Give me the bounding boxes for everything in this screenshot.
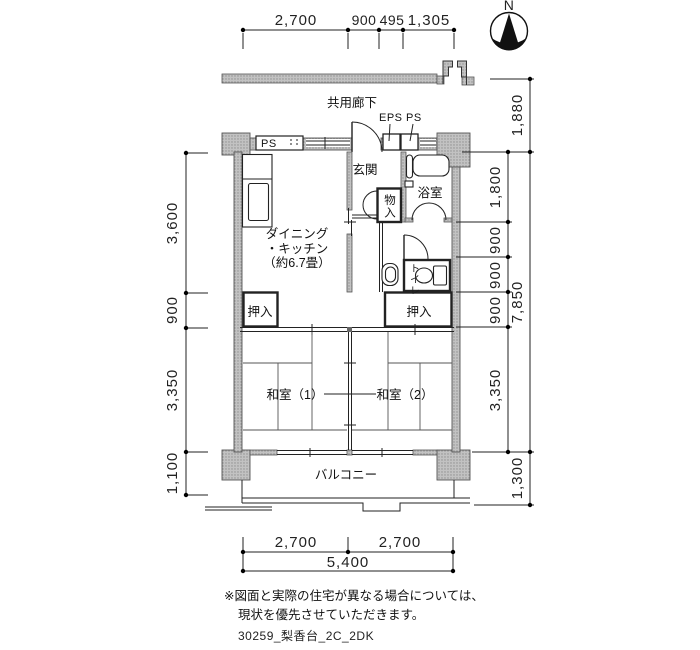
bath-door-swing2 bbox=[429, 203, 446, 220]
dim-right-inner-2: 900 bbox=[487, 226, 504, 254]
corridor-label: 共用廊下 bbox=[327, 95, 377, 110]
dim-left-4: 1,100 bbox=[164, 452, 181, 495]
north-compass: N bbox=[491, 0, 528, 50]
room-label-storage: 物入 bbox=[383, 193, 396, 219]
dim-top-4: 1,305 bbox=[408, 12, 451, 29]
bath-door-swing bbox=[412, 203, 429, 220]
dimension-bottom: 2,700 2,700 5,400 bbox=[241, 534, 455, 573]
dim-bottom-total: 5,400 bbox=[327, 554, 370, 571]
dim-bottom-1: 2,700 bbox=[275, 534, 318, 551]
storage-closet bbox=[363, 189, 401, 223]
eps-box bbox=[383, 134, 400, 150]
dim-right-inner-1: 1,800 bbox=[487, 166, 504, 209]
ps-box bbox=[401, 134, 418, 150]
corridor-gate-left-post bbox=[443, 61, 453, 84]
dim-left-2: 900 bbox=[164, 296, 181, 324]
room-label-dk-1: ダイニング bbox=[266, 226, 329, 241]
dim-right-outer-2: 7,850 bbox=[509, 281, 526, 324]
washitsu-walls bbox=[240, 324, 454, 450]
dim-right-outer-1: 1,880 bbox=[509, 94, 526, 137]
dimension-top: 2,700 900 495 1,305 bbox=[241, 12, 456, 49]
dim-right-inner-4: 900 bbox=[487, 296, 504, 324]
room-label-entrance: 玄関 bbox=[352, 162, 377, 177]
tatami-lines bbox=[243, 332, 452, 430]
bath-step bbox=[405, 181, 413, 187]
north-label: N bbox=[504, 0, 515, 13]
dimension-left: 3,600 900 3,350 1,100 bbox=[164, 151, 208, 497]
dim-left-3: 3,350 bbox=[164, 369, 181, 412]
top-wall-features: PS EPS PS bbox=[256, 112, 436, 152]
dim-top-3: 495 bbox=[380, 12, 405, 28]
dim-top-2: 900 bbox=[352, 12, 377, 28]
floor-plan-page: 2,700 900 495 1,305 N 共用廊下 PS bbox=[0, 0, 700, 650]
dim-right-outer-3: 1,300 bbox=[509, 457, 526, 500]
eps-label: EPS bbox=[379, 112, 403, 124]
dim-bottom-2: 2,700 bbox=[379, 534, 422, 551]
toilet-tank bbox=[434, 266, 447, 285]
corridor-wall: 共用廊下 bbox=[222, 61, 474, 110]
drawing-id: 30259_梨香台_2C_2DK bbox=[238, 628, 374, 643]
room-label-balcony: バルコニー bbox=[315, 468, 377, 482]
room-label-dk-3: （約6.7畳） bbox=[263, 255, 330, 270]
toilet-door-swing bbox=[404, 235, 428, 259]
room-label-washitsu1: 和室（1） bbox=[267, 387, 324, 402]
dim-right-inner-5: 3,350 bbox=[487, 369, 504, 412]
front-door-swing bbox=[352, 122, 382, 152]
bathtub bbox=[413, 155, 449, 176]
floor-plan-drawing: 2,700 900 495 1,305 N 共用廊下 PS bbox=[0, 0, 700, 650]
room-label-toilet: トイレ bbox=[408, 263, 420, 296]
bath-fixture bbox=[407, 155, 413, 178]
room-label-bath: 浴室 bbox=[417, 185, 442, 200]
ps-duct-label: PS bbox=[261, 138, 277, 150]
kitchen-counter bbox=[243, 155, 273, 228]
dim-left-1: 3,600 bbox=[164, 202, 181, 245]
dim-right-inner-3: 900 bbox=[487, 261, 504, 289]
ps-label: PS bbox=[406, 112, 422, 124]
footer-notes: ※図面と実際の住宅が異なる場合については、 現状を優先させていただきます。 30… bbox=[224, 588, 484, 643]
note-line2: 現状を優先させていただきます。 bbox=[238, 608, 424, 622]
room-label-washitsu2: 和室（2） bbox=[377, 387, 434, 402]
note-line1: ※図面と実際の住宅が異なる場合については、 bbox=[224, 588, 484, 603]
room-label-closet-left: 押入 bbox=[247, 305, 273, 319]
dim-top-1: 2,700 bbox=[275, 12, 318, 29]
room-label-closet-right: 押入 bbox=[406, 305, 432, 319]
room-label-dk-2: ・キッチン bbox=[266, 242, 329, 256]
